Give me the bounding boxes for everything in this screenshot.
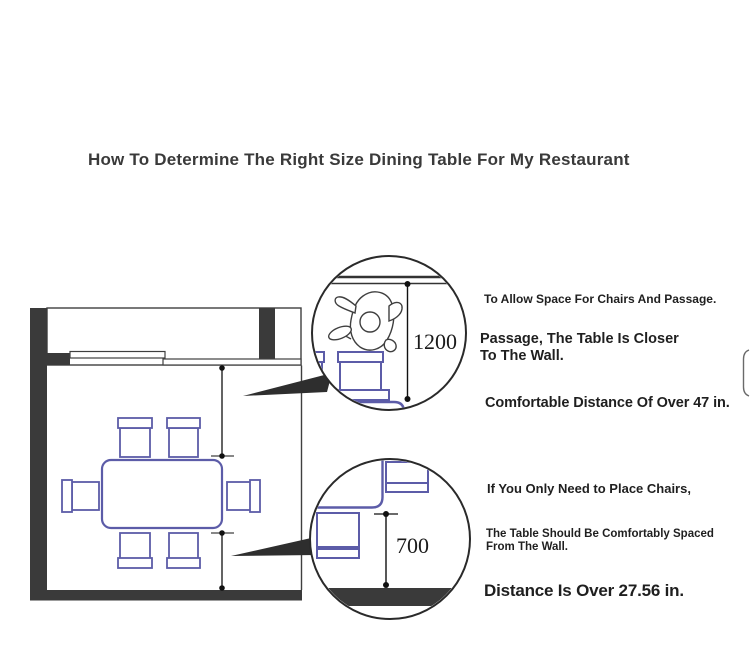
cropped-callout-edge bbox=[744, 350, 750, 396]
chair-top-2 bbox=[167, 418, 200, 457]
dimension-1200-label: 1200 bbox=[413, 329, 457, 354]
wall-stub bbox=[47, 353, 70, 365]
bottom-wall bbox=[30, 590, 302, 601]
person-hand bbox=[384, 339, 396, 351]
magnifier-top: 1200 bbox=[294, 256, 468, 434]
chair-left bbox=[62, 480, 99, 512]
window-right bbox=[163, 359, 301, 365]
chair-bottom-2 bbox=[167, 533, 200, 568]
magnifier-bottom: 700 bbox=[310, 458, 472, 619]
dimension-700-label: 700 bbox=[396, 533, 429, 558]
chair-right bbox=[227, 480, 260, 512]
chair-top-1 bbox=[118, 418, 152, 457]
chair-bottom-1 bbox=[118, 533, 152, 568]
wall-column bbox=[259, 308, 275, 365]
person-head bbox=[360, 312, 380, 332]
callout-leader-bottom bbox=[231, 536, 320, 556]
callout-leader-top bbox=[243, 373, 332, 396]
floor-plan-illustration: 1200 700 bbox=[0, 0, 750, 655]
window-left bbox=[70, 352, 165, 359]
dining-table bbox=[102, 460, 222, 528]
left-wall bbox=[30, 308, 47, 600]
room-plan bbox=[30, 308, 302, 601]
